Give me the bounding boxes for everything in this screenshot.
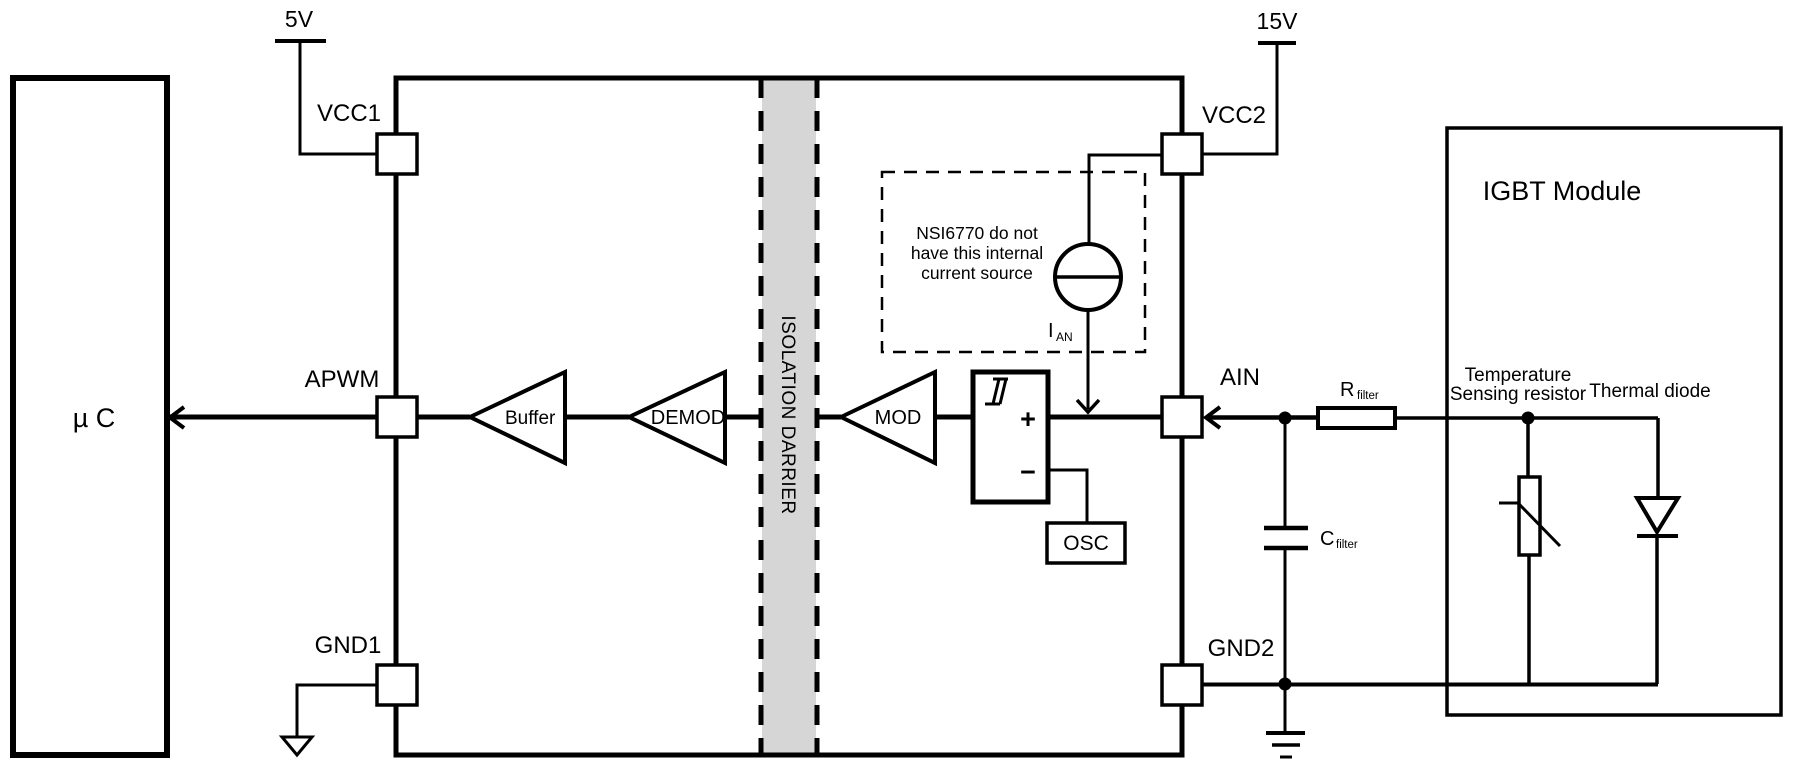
schematic-svg: NOVOSENSE µ C ISOLATION DARRIER IGBT Mod… (0, 0, 1799, 779)
pin-label-gnd2: GND2 (1208, 635, 1275, 662)
igbt-module-box (1447, 128, 1781, 715)
wire-vcc2-to-current-source (1089, 155, 1162, 244)
nsi-note-line2: have this internal (911, 243, 1043, 263)
hysteresis-icon (985, 379, 1008, 404)
ground1-triangle-icon (282, 737, 312, 755)
barrier-label: ISOLATION DARRIER (777, 315, 798, 514)
junction-dot-thermistor (1522, 412, 1535, 425)
current-source-label: I (1048, 320, 1054, 342)
pin-label-vcc1: VCC1 (317, 100, 381, 127)
comparator-box (973, 372, 1048, 502)
pin-vcc1 (377, 134, 417, 174)
thermal-diode-label: Thermal diode (1589, 381, 1710, 402)
wire-gnd1-to-ground (297, 685, 377, 737)
pin-apwm (377, 397, 417, 437)
cfilter-label: C (1320, 528, 1334, 550)
pin-label-ain: AIN (1220, 364, 1260, 391)
igbt-module-title: IGBT Module (1483, 176, 1642, 206)
pin-vcc2 (1162, 134, 1202, 174)
thermistor-label-line1: Temperature (1465, 365, 1572, 386)
supply-15v-label: 15V (1257, 8, 1299, 34)
junction-dot-ain (1279, 412, 1292, 425)
pin-label-vcc2: VCC2 (1202, 102, 1266, 129)
mcu-label: µ C (73, 403, 116, 433)
wire-5v-to-vcc1 (300, 41, 377, 154)
thermistor-label-line2: Sensing resistor (1450, 384, 1587, 405)
rfilter-resistor-icon (1318, 408, 1395, 428)
wire-15v-to-vcc2 (1202, 43, 1277, 154)
nsi-note-line3: current source (921, 263, 1033, 283)
rfilter-label-sub: filter (1357, 390, 1379, 402)
pin-label-apwm: APWM (305, 366, 380, 393)
comparator-plus-label: + (1020, 404, 1036, 434)
buffer-label: Buffer (505, 408, 556, 429)
osc-label: OSC (1063, 532, 1109, 555)
current-source-label-sub: AN (1056, 330, 1073, 344)
nsi-note-line1: NSI6770 do not (916, 223, 1038, 243)
diode-icon (1637, 498, 1678, 532)
rfilter-label: R (1340, 379, 1354, 401)
pin-gnd1 (377, 665, 417, 705)
wire-comparator-to-osc (1048, 470, 1087, 523)
cfilter-label-sub: filter (1336, 539, 1358, 551)
demod-label: DEMOD (651, 407, 725, 429)
mod-label: MOD (875, 407, 922, 429)
pin-ain (1162, 397, 1202, 437)
comparator-minus-label: − (1020, 457, 1036, 487)
pin-label-gnd1: GND1 (315, 632, 382, 659)
schematic-canvas: NOVOSENSE µ C ISOLATION DARRIER IGBT Mod… (0, 0, 1799, 779)
supply-5v-label: 5V (285, 6, 314, 32)
pin-gnd2 (1162, 665, 1202, 705)
junction-dot-gnd2 (1279, 678, 1292, 691)
